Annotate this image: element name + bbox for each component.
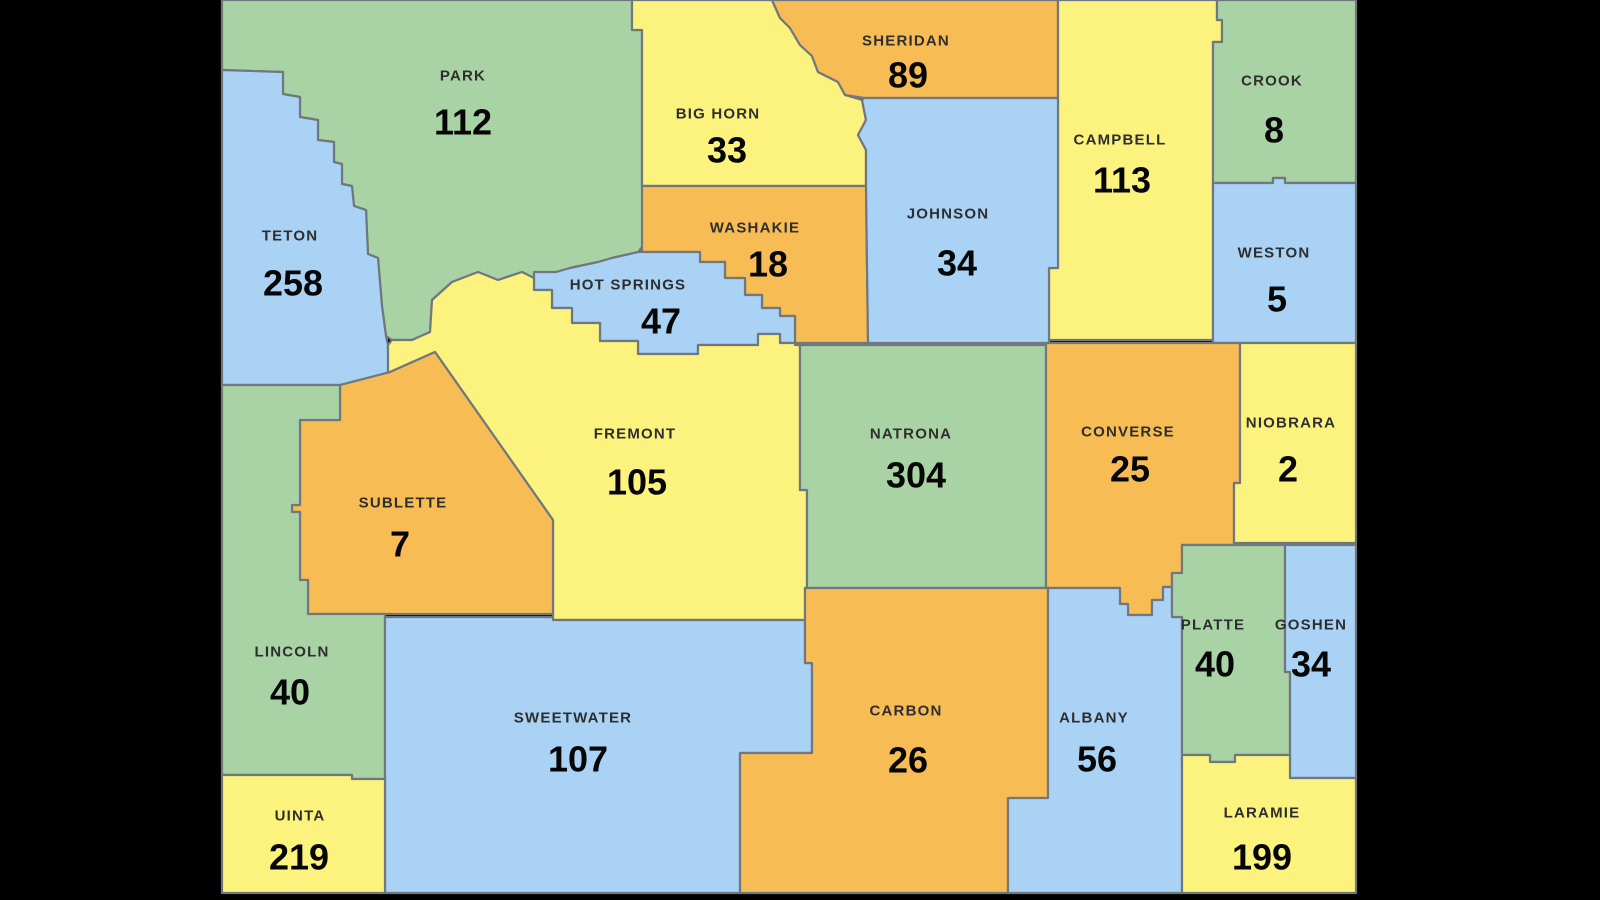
county-weston[interactable] <box>1213 178 1356 343</box>
county-niobrara[interactable] <box>1234 343 1356 543</box>
county-crook[interactable] <box>1213 0 1356 183</box>
county-natrona[interactable] <box>800 345 1046 588</box>
county-johnson[interactable] <box>858 98 1058 343</box>
county-goshen[interactable] <box>1285 545 1356 778</box>
map-stage: PARK112BIG HORN33SHERIDAN89CAMPBELL113CR… <box>0 0 1600 900</box>
county-platte[interactable] <box>1172 545 1290 762</box>
county-uinta[interactable] <box>222 775 385 893</box>
counties-layer: PARK112BIG HORN33SHERIDAN89CAMPBELL113CR… <box>222 0 1356 893</box>
wyoming-county-map: PARK112BIG HORN33SHERIDAN89CAMPBELL113CR… <box>0 0 1600 900</box>
county-campbell[interactable] <box>1049 0 1222 340</box>
